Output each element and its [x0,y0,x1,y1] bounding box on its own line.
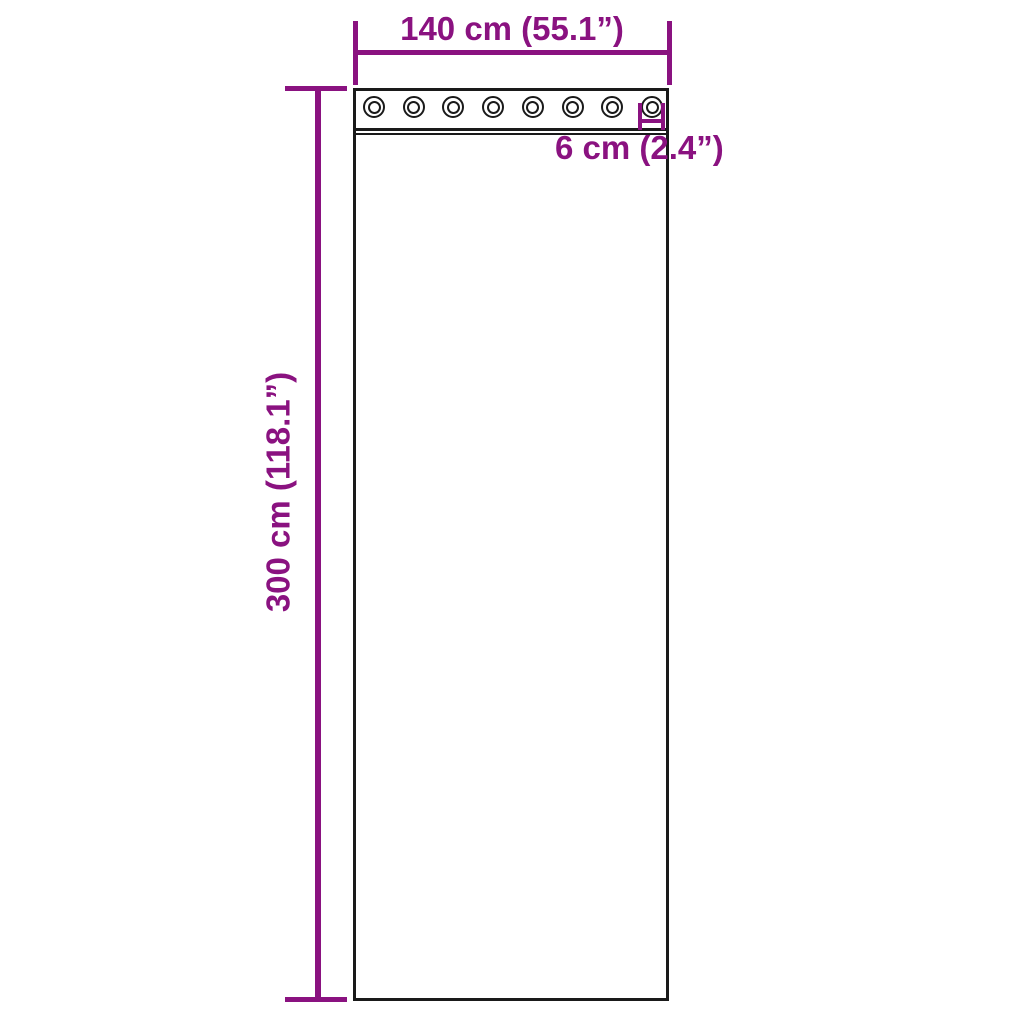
width-dimension-line [355,50,670,55]
grommet-icon [403,96,425,118]
grommet-icon [363,96,385,118]
grommet-hole [487,101,500,114]
grommet-dimension-right-tick [661,103,665,130]
grommet-hole [646,101,659,114]
height-dimension-bottom-tick [285,997,347,1002]
grommet-dimension-label: 6 cm (2.4”) [555,131,724,164]
grommet-hole [526,101,539,114]
height-dimension-line [315,88,321,1001]
grommet-icon [522,96,544,118]
grommet-icon [641,96,663,118]
grommet-icon [442,96,464,118]
height-dimension-label: 300 cm (118.1”) [262,372,295,612]
grommet-dimension-left-tick [638,103,642,130]
width-dimension-label: 140 cm (55.1”) [352,12,672,45]
product-dimension-diagram: 140 cm (55.1”) 300 cm (118.1”) 6 cm (2.4… [0,0,1024,1024]
grommet-icon [601,96,623,118]
grommet-icon [482,96,504,118]
grommet-hole [566,101,579,114]
grommet-hole [368,101,381,114]
grommet-row [0,0,1024,1024]
grommet-icon [562,96,584,118]
grommet-hole [606,101,619,114]
grommet-hole [447,101,460,114]
grommet-hole [407,101,420,114]
grommet-dimension-line [638,119,665,123]
